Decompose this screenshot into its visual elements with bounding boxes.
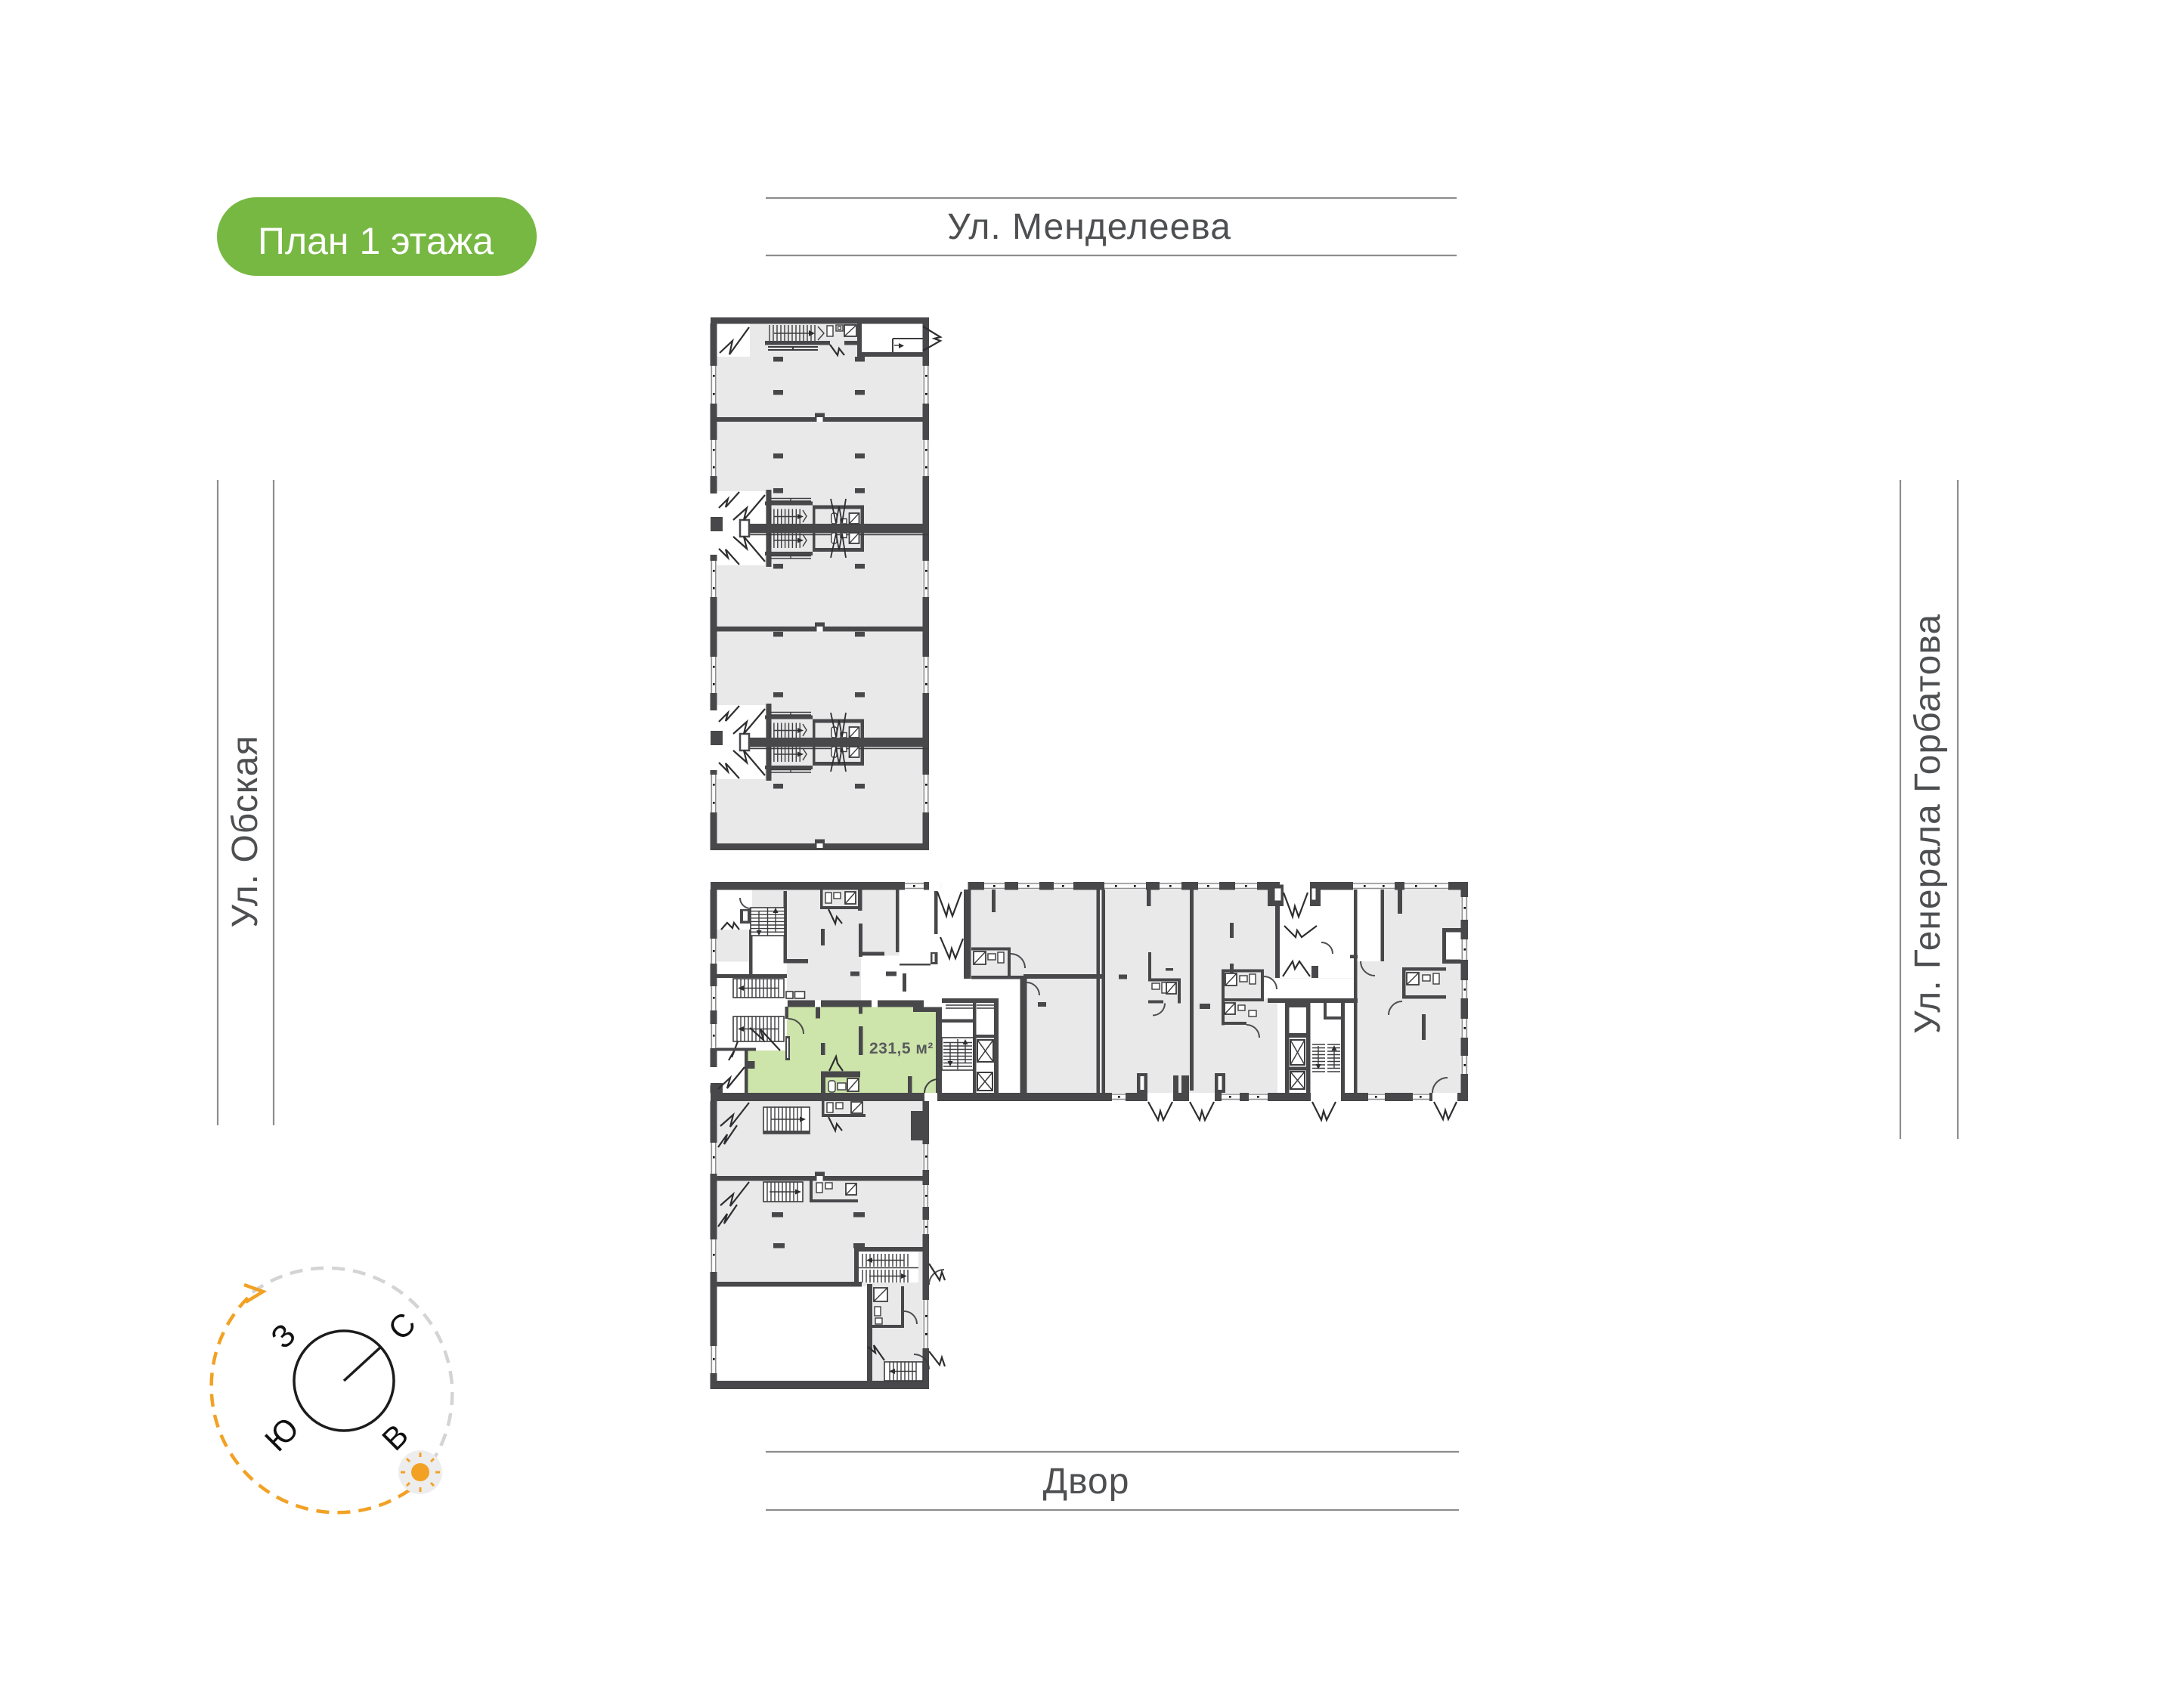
svg-text:Двор: Двор [1043,1462,1130,1502]
svg-text:231,5 м²: 231,5 м² [869,1040,934,1057]
svg-text:Ул. Менделеева: Ул. Менделеева [947,207,1231,247]
svg-text:План 1 этажа: План 1 этажа [258,220,494,262]
svg-text:Ул. Обская: Ул. Обская [225,735,265,928]
svg-text:Ул. Генерала Горбатова: Ул. Генерала Горбатова [1908,614,1948,1034]
